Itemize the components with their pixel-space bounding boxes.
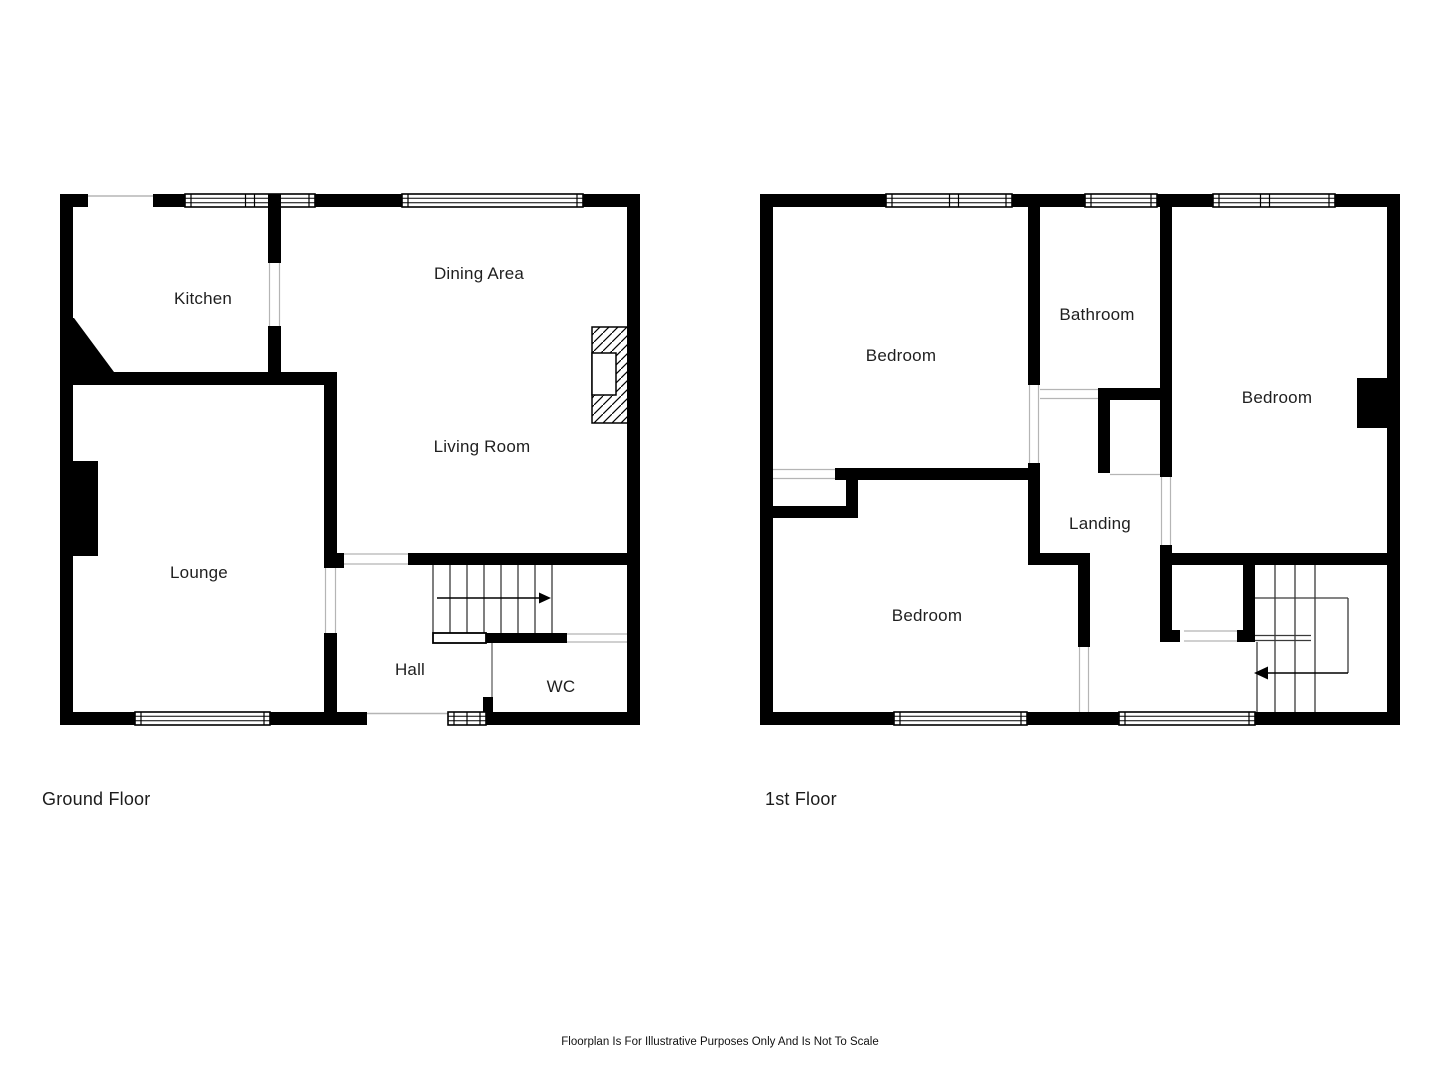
gf-chimney-breast (60, 461, 98, 556)
ff-window-top-middle (1085, 194, 1157, 207)
room-label-living-room: Living Room (434, 437, 531, 456)
room-label-dining-area: Dining Area (434, 264, 524, 283)
gf-kitchen-diagonal-wall (60, 318, 114, 385)
ff-chimney-breast (1357, 378, 1400, 428)
room-label-lounge: Lounge (170, 563, 228, 582)
room-label-kitchen: Kitchen (174, 289, 232, 308)
gf-kitchen-window (185, 194, 315, 207)
room-label-bedroom-1: Bedroom (866, 346, 936, 365)
gf-lounge-window (135, 712, 270, 725)
room-label-wc: WC (547, 677, 576, 696)
floorplan-page: Kitchen Dining Area Living Room Lounge H… (0, 0, 1440, 1080)
ff-interior-walls (773, 194, 1400, 712)
gf-staircase (433, 565, 552, 643)
ff-window-bottom-right (1119, 712, 1255, 725)
gf-exterior-walls (60, 194, 640, 725)
gf-fireplace (592, 327, 628, 423)
gf-hall-small-window (448, 712, 486, 725)
room-label-bedroom-2: Bedroom (1242, 388, 1312, 407)
gf-stairs-up-arrow (539, 593, 551, 604)
room-label-landing: Landing (1069, 514, 1131, 533)
room-label-bedroom-3: Bedroom (892, 606, 962, 625)
ff-window-bottom-left (894, 712, 1027, 725)
floorplan-drawing: Kitchen Dining Area Living Room Lounge H… (0, 0, 1440, 1080)
gf-dining-window (402, 194, 583, 207)
gf-interior-walls (60, 194, 640, 712)
ff-window-top-left (886, 194, 1012, 207)
disclaimer-text: Floorplan Is For Illustrative Purposes O… (0, 1036, 1440, 1048)
ff-stairs-down-arrow (1254, 667, 1268, 680)
ground-floor-plan: Kitchen Dining Area Living Room Lounge H… (60, 194, 640, 725)
room-label-bathroom: Bathroom (1059, 305, 1134, 324)
ff-window-top-right (1213, 194, 1335, 207)
ground-floor-title: Ground Floor (42, 789, 150, 810)
room-label-hall: Hall (395, 660, 425, 679)
ff-staircase (1254, 565, 1348, 712)
first-floor-title: 1st Floor (765, 789, 837, 810)
first-floor-plan: Bedroom Bathroom Bedroom Landing Bedroom (760, 194, 1400, 725)
